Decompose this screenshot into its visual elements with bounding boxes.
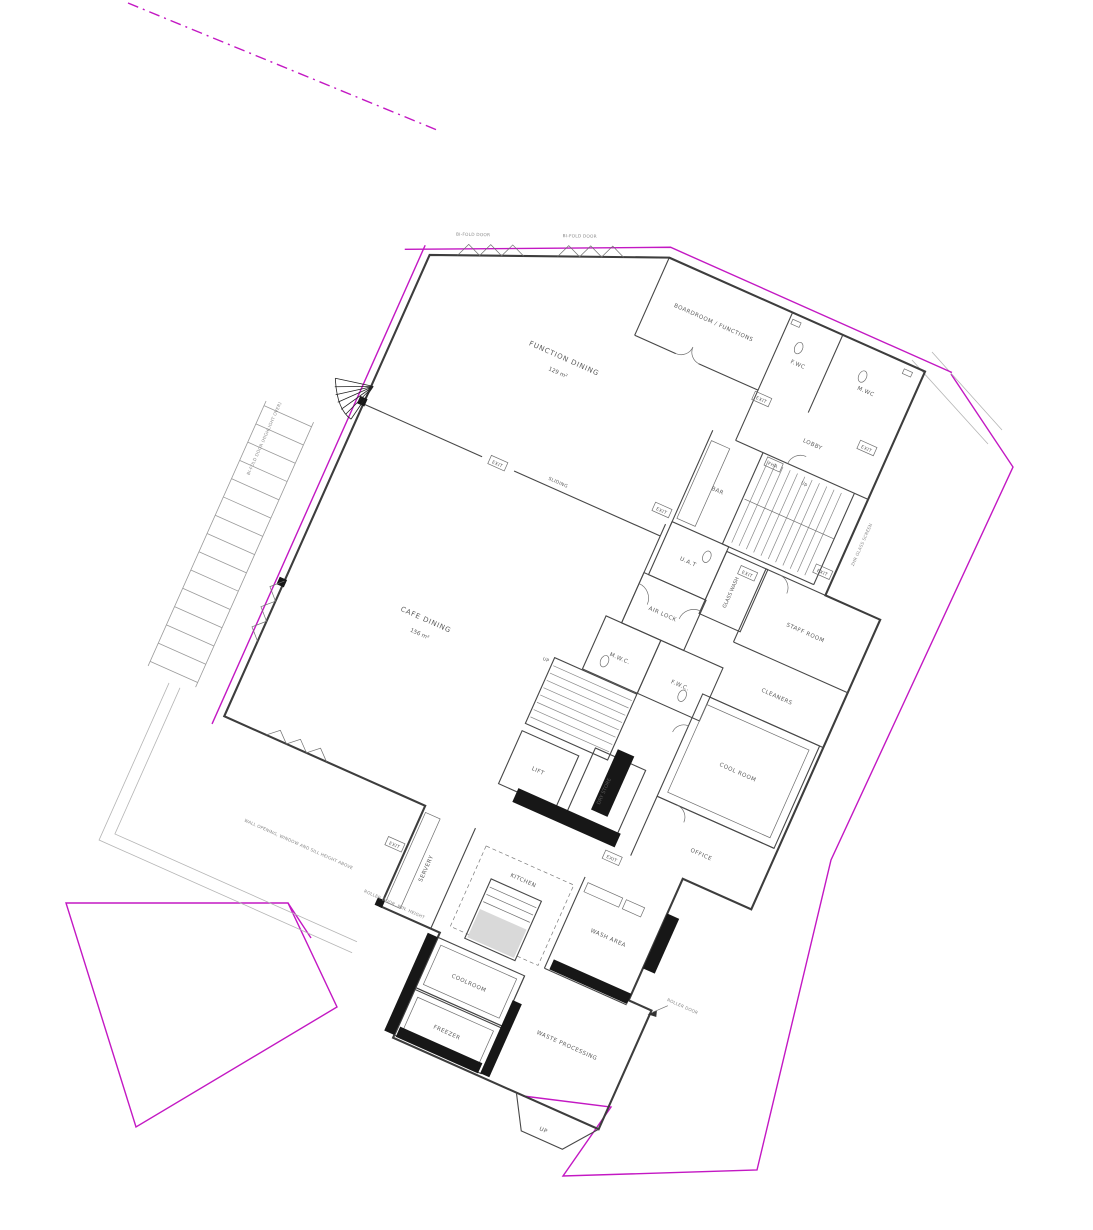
- room-label-cleaners: CLEANERS: [760, 688, 793, 707]
- wall-fill: [591, 749, 634, 817]
- easement-dash-dot-line: [128, 3, 437, 130]
- colonnade: [148, 401, 313, 687]
- wall-fill: [396, 1027, 483, 1074]
- note-roller-door: ROLLER DOOR, MIN. HEIGHT: [363, 889, 426, 921]
- terrace-edge-lines: [99, 683, 422, 953]
- sliding-partition-label: SLIDING: [547, 476, 569, 490]
- bar-counter: [677, 441, 730, 527]
- note-bifold-2: BI-FOLD DOOR: [563, 233, 597, 240]
- room-label-air-lock: AIR LOCK: [647, 606, 677, 624]
- room-label-glass-wash: GLASS WASH: [722, 576, 741, 609]
- room-label-waste-processing: WASTE PROCESSING: [535, 1030, 597, 1062]
- room-mwc-core: [582, 616, 660, 693]
- internal-walls: [134, 168, 980, 1147]
- room-label-office: OFFICE: [689, 848, 712, 863]
- bifold-door-bottom-wall: [266, 726, 330, 762]
- room-label-coolroom: COOLROOM: [450, 973, 487, 994]
- room-label-staff-room: STAFF ROOM: [785, 622, 825, 644]
- basin-fixture: [902, 369, 912, 377]
- stair-1-handrail: [745, 499, 835, 539]
- room-area-cafe-dining: 156 m²: [409, 627, 430, 642]
- room-label-servery: SERVERY: [418, 855, 435, 884]
- room-label-mwc-top: M.WC: [856, 386, 875, 399]
- site-boundary-top: [405, 149, 952, 473]
- wall-fill: [480, 1000, 522, 1077]
- room-label-cafe-dining: CAFE DINING: [399, 605, 452, 635]
- stair-2-box: [525, 658, 637, 760]
- note-roller-door-2: ROLLER DOOR: [666, 997, 699, 1016]
- stair-up-label: Up: [800, 480, 809, 488]
- note-bifold-3: BI-FOLD DOOR (HIGHLIGHT OVER): [246, 401, 284, 476]
- room-label-freezer: FREEZER: [432, 1024, 461, 1041]
- room-label-wash-area: WASH AREA: [589, 928, 626, 949]
- wall-fill: [384, 933, 438, 1035]
- wash-bench: [584, 883, 623, 908]
- room-label-bar: BAR: [710, 486, 724, 497]
- room-label-boardroom: BOARDROOM / FUNCTIONS: [673, 303, 754, 344]
- wall-fill: [643, 914, 679, 974]
- building-plan-group: FUNCTION DINING 129 m² CAFE DINING 156 m…: [37, 122, 984, 1179]
- ramp-up-label: UP: [538, 1126, 548, 1135]
- note-glass-screen: 2HR GLASS SCREEN: [850, 522, 874, 567]
- kitchen-island-hatch: [467, 909, 526, 958]
- room-label-cool-room: COOL ROOM: [718, 762, 757, 784]
- room-fwc-core: [637, 640, 723, 721]
- room-label-lift: LIFT: [531, 766, 546, 777]
- room-label-mwc-core: M.W.C.: [608, 652, 631, 666]
- wash-bench: [622, 900, 644, 917]
- floor-plan-sheet: FUNCTION DINING 129 m² CAFE DINING 156 m…: [0, 0, 1093, 1230]
- toilet-fixture: [701, 550, 713, 564]
- room-label-fwc-top: F.WC: [789, 359, 806, 371]
- basin-fixture: [791, 319, 801, 327]
- wall-fill: [549, 959, 631, 1004]
- toilet-fixture: [793, 341, 805, 355]
- floor-plan-drawing: FUNCTION DINING 129 m² CAFE DINING 156 m…: [0, 0, 1093, 1230]
- toilet-fixture: [857, 369, 869, 383]
- note-window: WALL OPENING, WINDOW AND SILL HEIGHT ABO…: [243, 818, 354, 872]
- parcel-boundary-lower-left: [66, 903, 337, 1127]
- room-area-function-dining: 129 m²: [547, 365, 568, 380]
- room-label-uat: U.A.T: [679, 556, 697, 569]
- stair2-up-label: UP: [542, 656, 551, 664]
- room-label-fwc-core: F.W.C.: [670, 679, 690, 692]
- ramp-walls: [503, 1093, 599, 1160]
- note-bifold-1: BI-FOLD DOOR: [456, 232, 490, 239]
- room-label-lobby: LOBBY: [802, 438, 823, 452]
- room-label-kitchen: KITCHEN: [509, 873, 537, 890]
